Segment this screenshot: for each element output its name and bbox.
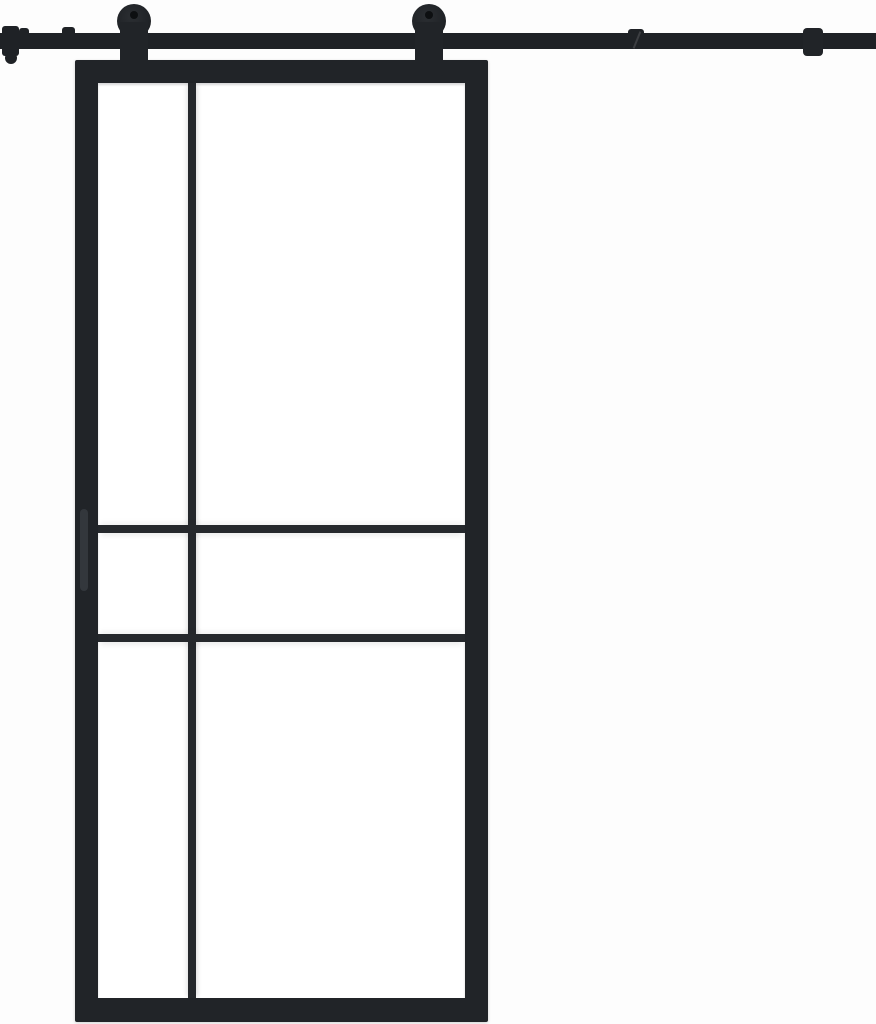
track-mount-bracket (803, 28, 823, 56)
track-left-end-stop-knob (5, 52, 17, 64)
door-glass-panel (98, 83, 465, 998)
glass-mullion-horizontal-upper (98, 525, 465, 533)
door-recessed-handle (80, 509, 88, 591)
glass-mullion-vertical (188, 83, 196, 998)
roller-hanger-strap (415, 22, 443, 76)
roller-hub-bolt (130, 11, 138, 19)
roller-hub-bolt (425, 11, 433, 19)
roller-hanger-strap (120, 22, 148, 76)
glass-mullion-horizontal-lower (98, 634, 465, 642)
product-image-canvas (0, 0, 876, 1024)
